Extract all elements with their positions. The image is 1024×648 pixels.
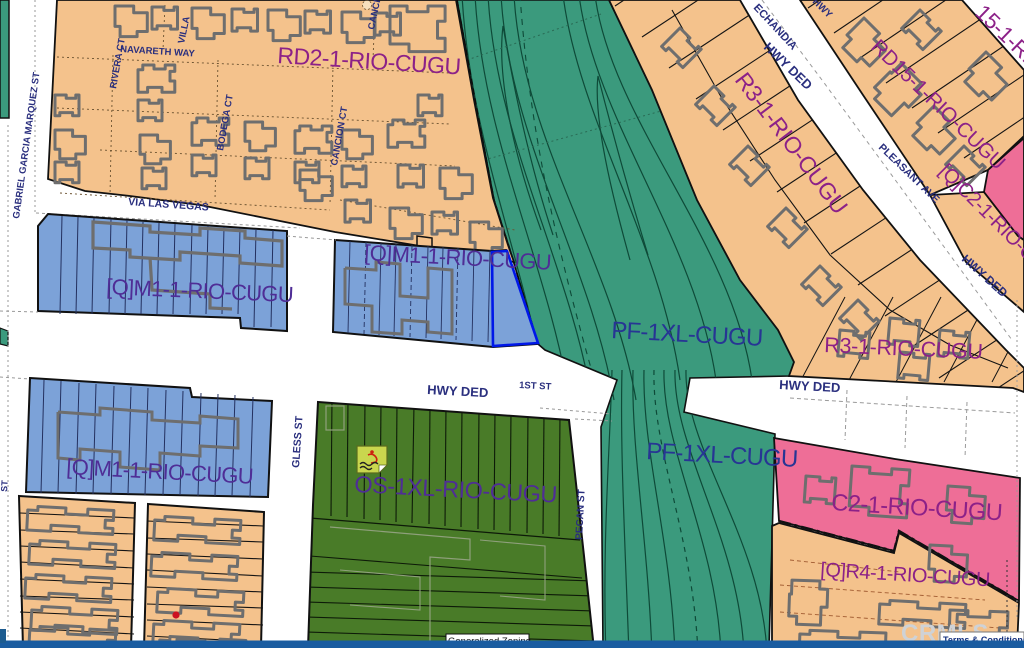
- svg-text:ST: ST: [0, 479, 10, 492]
- svg-text:1ST ST: 1ST ST: [519, 380, 552, 393]
- svg-text:HWY DED: HWY DED: [779, 377, 841, 395]
- svg-text:HWY DED: HWY DED: [427, 382, 489, 400]
